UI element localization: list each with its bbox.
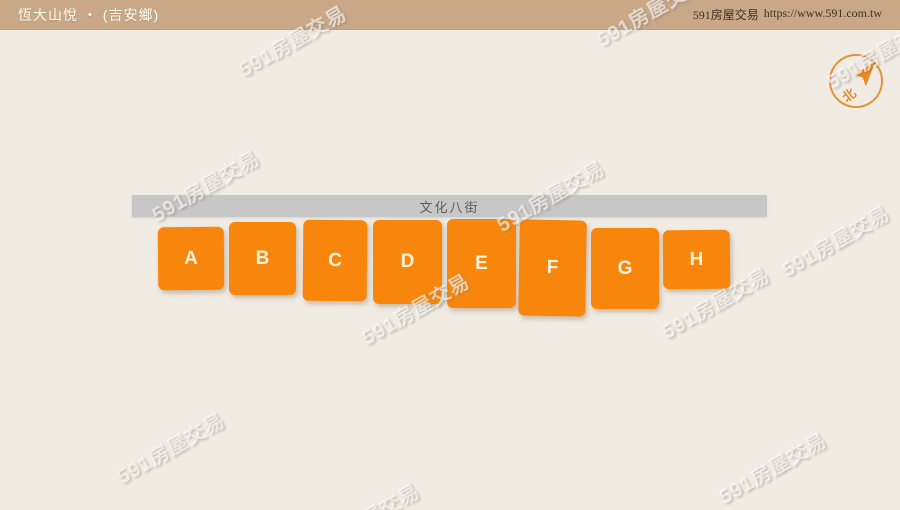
building-label: F — [546, 257, 558, 279]
compass: 北 — [829, 54, 883, 108]
building-block-H[interactable]: H — [663, 230, 731, 290]
building-block-F[interactable]: F — [518, 219, 587, 316]
building-block-E[interactable]: E — [447, 219, 516, 308]
building-block-C[interactable]: C — [303, 220, 368, 302]
building-label: C — [328, 249, 342, 271]
building-label: A — [184, 247, 198, 269]
building-label: E — [475, 253, 488, 275]
building-block-B[interactable]: B — [229, 222, 296, 295]
building-label: G — [618, 258, 633, 280]
building-label: H — [690, 248, 704, 270]
site-plan-page: 恆大山悅 ‧ (吉安鄉) 591房屋交易 https://www.591.com… — [0, 0, 900, 510]
building-block-A[interactable]: A — [158, 227, 225, 291]
building-label: D — [401, 251, 415, 273]
north-arrow-icon — [848, 59, 878, 89]
building-block-G[interactable]: G — [591, 228, 659, 309]
buildings-layer: ABCDEFGH — [0, 0, 900, 510]
building-label: B — [256, 248, 270, 270]
building-block-D[interactable]: D — [373, 220, 442, 304]
